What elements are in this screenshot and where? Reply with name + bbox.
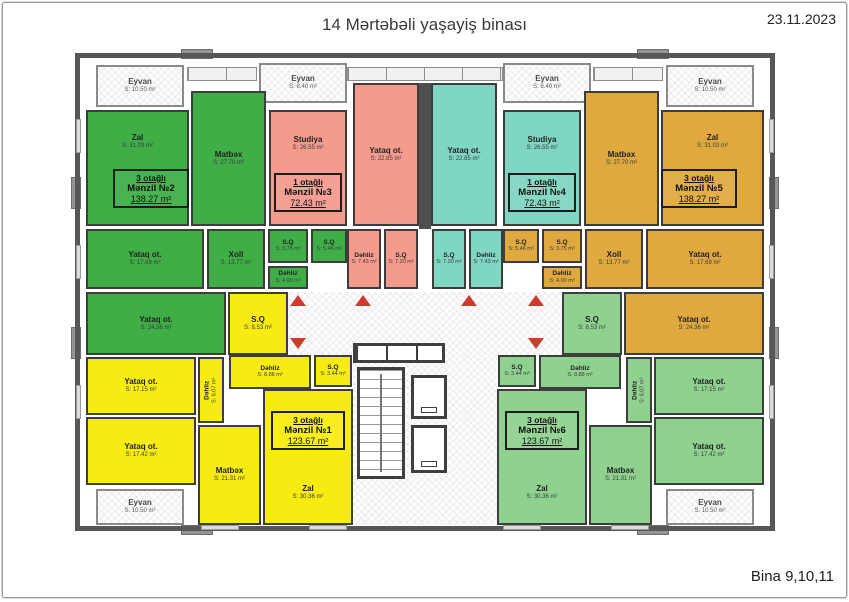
room-area-label: S: 27.70 m² bbox=[606, 160, 637, 168]
room-dehliz-5: DəhlizS: 4.00 m² bbox=[542, 266, 582, 289]
room-area-label: S: 4.00 m² bbox=[549, 278, 574, 285]
room-sq-4: S.QS: 7.20 m² bbox=[432, 229, 466, 289]
room-area-label: S: 10.50 m² bbox=[694, 508, 725, 516]
room-area-label: S: 31.03 m² bbox=[697, 143, 728, 151]
room-name-label: Eyvan bbox=[128, 498, 152, 508]
room-area-label: S: 7.20 m² bbox=[388, 259, 413, 266]
room-area-label: S: 6.07 m² bbox=[639, 377, 646, 402]
room-name-label: S.Q bbox=[515, 239, 526, 247]
room-area-label: S: 8.40 m² bbox=[533, 84, 561, 92]
apartment-label-line: 1 otağlı bbox=[279, 177, 337, 187]
room-name-label: Zal bbox=[132, 133, 144, 143]
interior-wall bbox=[419, 83, 431, 229]
room-name-label: Matbəx bbox=[608, 150, 636, 160]
page-title: 14 Mərtəbəli yaşayiş binası bbox=[3, 15, 846, 35]
room-area-label: S: 3.44 m² bbox=[504, 371, 529, 378]
room-name-label: S.Q bbox=[282, 239, 293, 247]
room-zal-5: ZalS: 31.03 m² bbox=[661, 110, 764, 226]
room-area-label: S: 26.55 m² bbox=[526, 145, 557, 153]
room-name-label: S.Q bbox=[511, 364, 522, 372]
room-zal-2: ZalS: 31.03 m² bbox=[86, 110, 189, 226]
room-name-label: Xoll bbox=[607, 250, 622, 260]
room-dehliz-3: DəhlizS: 7.43 m² bbox=[347, 229, 381, 289]
window-opening bbox=[611, 525, 649, 530]
room-dehliz-6a: DəhlizS: 8.88 m² bbox=[539, 355, 621, 389]
window-opening bbox=[769, 245, 774, 279]
room-name-label: Yataq ot. bbox=[139, 315, 172, 325]
room-sq-5b: S.QS: 5.46 m² bbox=[503, 229, 539, 263]
balcony-eyvan-6: EyvanS: 10.50 m² bbox=[666, 489, 754, 525]
apartment-label-line: Mənzil №3 bbox=[279, 187, 337, 198]
room-name-label: Yataq ot. bbox=[369, 146, 402, 156]
staircase bbox=[357, 367, 405, 479]
apartment-label: 3 otağlıMənzil №1123.67 m² bbox=[271, 411, 345, 450]
window-opening bbox=[769, 385, 774, 419]
entrance-arrow-icon bbox=[290, 295, 306, 306]
room-name-label: Yataq ot. bbox=[692, 442, 725, 452]
apartment-label: 1 otağlıMənzil №472.43 m² bbox=[508, 173, 576, 212]
apartment-label-line: 72.43 m² bbox=[279, 198, 337, 208]
room-matbex-2: MatbəxS: 27.70 m² bbox=[191, 91, 266, 226]
room-area-label: S: 10.50 m² bbox=[124, 508, 155, 516]
room-name-label: Yataq ot. bbox=[128, 250, 161, 260]
room-area-label: S: 22.85 m² bbox=[448, 156, 479, 164]
room-sq-3: S.QS: 7.20 m² bbox=[384, 229, 418, 289]
apartment-label-line: 72.43 m² bbox=[513, 198, 571, 208]
room-area-label: S: 31.03 m² bbox=[122, 143, 153, 151]
room-area-label: S: 3.75 m² bbox=[549, 246, 574, 253]
room-xoll-2: XollS: 13.77 m² bbox=[207, 229, 265, 289]
room-name-label: Dəhliz bbox=[570, 365, 589, 373]
room-yataq-4: Yataq ot.S: 22.85 m² bbox=[431, 83, 497, 226]
balcony-eyvan-2: EyvanS: 10.50 m² bbox=[96, 65, 184, 107]
room-name-label: Yataq ot. bbox=[677, 315, 710, 325]
room-name-label: Eyvan bbox=[698, 498, 722, 508]
window-opening bbox=[76, 245, 81, 279]
room-name-label: S.Q bbox=[327, 364, 338, 372]
room-area-label: S: 8.88 m² bbox=[567, 372, 592, 379]
room-dehliz-1a: DəhlizS: 8.88 m² bbox=[229, 355, 311, 389]
apartment-label: 3 otağlıMənzil №6123.67 m² bbox=[505, 411, 579, 450]
room-matbex-6: MatbəxS: 21.31 m² bbox=[589, 425, 652, 525]
room-area-label: S: 7.43 m² bbox=[351, 259, 376, 266]
room-name-label: S.Q bbox=[585, 315, 599, 325]
room-area-label: S: 10.50 m² bbox=[694, 87, 725, 95]
window-opening bbox=[76, 119, 81, 153]
room-sq-2b: S.QS: 5.46 m² bbox=[311, 229, 347, 263]
apartment-label-line: Mənzil №2 bbox=[118, 183, 184, 194]
room-area-label: S: 5.46 m² bbox=[508, 246, 533, 253]
room-sq-2a: S.QS: 3.75 m² bbox=[268, 229, 308, 263]
room-name-label: Matbəx bbox=[215, 150, 243, 160]
balcony-eyvan-4: EyvanS: 8.40 m² bbox=[503, 63, 591, 103]
room-area-label: S: 13.77 m² bbox=[598, 260, 629, 268]
apartment-label-line: 3 otağlı bbox=[510, 415, 574, 425]
room-name-label: S.Q bbox=[395, 252, 406, 260]
entrance-arrow-icon bbox=[355, 295, 371, 306]
room-name-label: Dəhliz bbox=[354, 252, 373, 260]
room-name-label: Dəhliz bbox=[476, 252, 495, 260]
apartment-label: 1 otağlıMənzil №372.43 m² bbox=[274, 173, 342, 212]
window-opening bbox=[769, 119, 774, 153]
room-name-label: Studiya bbox=[528, 135, 557, 145]
room-matbex-1: MatbəxS: 21.31 m² bbox=[198, 425, 261, 525]
room-sq-6a: S.QS: 8.53 m² bbox=[562, 292, 622, 355]
facade-window-band bbox=[593, 67, 663, 81]
room-area-label: S: 3.44 m² bbox=[320, 371, 345, 378]
window-opening bbox=[201, 525, 239, 530]
room-area-label: S: 17.42 m² bbox=[125, 452, 156, 460]
room-name-label: Dəhliz bbox=[260, 365, 279, 373]
room-area-label: S: 3.75 m² bbox=[275, 246, 300, 253]
room-name-label: S.Q bbox=[443, 252, 454, 260]
room-name-label: Matbəx bbox=[607, 466, 635, 476]
apartment-label: 3 otağlıMənzil №5138.27 m² bbox=[661, 169, 737, 208]
room-sq-6b: S.QS: 3.44 m² bbox=[498, 355, 536, 387]
entrance-arrow-icon bbox=[461, 295, 477, 306]
room-name-label: Yataq ot. bbox=[692, 377, 725, 387]
room-yataq-2a: Yataq ot.S: 17.69 m² bbox=[86, 229, 204, 289]
room-area-label: S: 13.77 m² bbox=[220, 260, 251, 268]
room-area-label: S: 8.53 m² bbox=[578, 325, 606, 333]
room-area-label: S: 22.85 m² bbox=[370, 156, 401, 164]
room-area-label: S: 8.40 m² bbox=[289, 84, 317, 92]
room-area-label: S: 8.53 m² bbox=[244, 325, 272, 333]
apartment-label-line: Mənzil №1 bbox=[276, 425, 340, 436]
room-name-label: Studiya bbox=[294, 135, 323, 145]
apartment-label-line: Mənzil №5 bbox=[666, 183, 732, 194]
apartment-label-line: 123.67 m² bbox=[510, 436, 574, 446]
date-label: 23.11.2023 bbox=[767, 11, 836, 27]
room-sq-5a: S.QS: 3.75 m² bbox=[542, 229, 582, 263]
core-vestibule bbox=[353, 343, 445, 363]
apartment-label-line: 3 otağlı bbox=[666, 173, 732, 183]
room-area-label: S: 7.20 m² bbox=[436, 259, 461, 266]
window-opening bbox=[503, 525, 541, 530]
building-number-label: Bina 9,10,11 bbox=[751, 568, 834, 585]
room-yataq-5a: Yataq ot.S: 17.69 m² bbox=[646, 229, 764, 289]
room-area-label: S: 17.69 m² bbox=[129, 260, 160, 268]
room-area-label: S: 30.36 m² bbox=[292, 494, 323, 502]
room-name-label: S.Q bbox=[251, 315, 265, 325]
room-area-label: S: 5.46 m² bbox=[316, 246, 341, 253]
apartment-label-line: 138.27 m² bbox=[118, 194, 184, 204]
elevator-shaft bbox=[411, 375, 447, 419]
room-name-label: Xoll bbox=[229, 250, 244, 260]
room-area-label: S: 24.36 m² bbox=[140, 325, 171, 333]
apartment-label-line: 1 otağlı bbox=[513, 177, 571, 187]
room-xoll-5: XollS: 13.77 m² bbox=[585, 229, 643, 289]
room-name-label: Eyvan bbox=[128, 77, 152, 87]
room-yataq-1a: Yataq ot.S: 17.15 m² bbox=[86, 357, 196, 415]
room-zal-1: ZalS: 30.36 m² bbox=[263, 389, 353, 525]
room-yataq-3: Yataq ot.S: 22.85 m² bbox=[353, 83, 419, 226]
room-area-label: S: 27.70 m² bbox=[213, 160, 244, 168]
apartment-label-line: 138.27 m² bbox=[666, 194, 732, 204]
room-area-label: S: 7.43 m² bbox=[473, 259, 498, 266]
floor-plan: EyvanS: 10.50 m²EyvanS: 8.40 m²EyvanS: 8… bbox=[81, 59, 769, 525]
room-area-label: S: 17.69 m² bbox=[689, 260, 720, 268]
balcony-eyvan-5: EyvanS: 10.50 m² bbox=[666, 65, 754, 107]
room-name-label: Zal bbox=[536, 484, 548, 494]
window-opening bbox=[76, 385, 81, 419]
apartment-label-line: Mənzil №6 bbox=[510, 425, 574, 436]
room-name-label: Dəhliz bbox=[278, 270, 297, 278]
room-dehliz-2: DəhlizS: 4.00 m² bbox=[268, 266, 308, 289]
room-yataq-5b: Yataq ot.S: 24.36 m² bbox=[624, 292, 764, 355]
room-name-label: Eyvan bbox=[291, 74, 315, 84]
room-yataq-6a: Yataq ot.S: 17.15 m² bbox=[654, 357, 764, 415]
room-area-label: S: 30.36 m² bbox=[526, 494, 557, 502]
room-matbex-5: MatbəxS: 27.70 m² bbox=[584, 91, 659, 226]
room-area-label: S: 26.55 m² bbox=[292, 145, 323, 153]
room-area-label: S: 21.31 m² bbox=[214, 476, 245, 484]
room-name-label: Yataq ot. bbox=[688, 250, 721, 260]
room-name-label: S.Q bbox=[556, 239, 567, 247]
elevator-shaft bbox=[411, 425, 447, 473]
apartment-label-line: 3 otağlı bbox=[276, 415, 340, 425]
room-yataq-6b: Yataq ot.S: 17.42 m² bbox=[654, 417, 764, 485]
window-opening bbox=[309, 525, 347, 530]
entrance-arrow-icon bbox=[290, 338, 306, 349]
room-name-label: Yataq ot. bbox=[124, 442, 157, 452]
facade-window-band bbox=[347, 67, 503, 81]
room-area-label: S: 4.00 m² bbox=[275, 278, 300, 285]
room-area-label: S: 17.42 m² bbox=[693, 452, 724, 460]
room-dehliz-4: DəhlizS: 7.43 m² bbox=[469, 229, 503, 289]
room-name-label: Matbəx bbox=[216, 466, 244, 476]
room-name-label: Yataq ot. bbox=[124, 377, 157, 387]
room-area-label: S: 17.15 m² bbox=[693, 387, 724, 395]
room-sq-1a: S.QS: 8.53 m² bbox=[228, 292, 288, 355]
room-area-label: S: 6.07 m² bbox=[211, 377, 218, 402]
apartment-label-line: 3 otağlı bbox=[118, 173, 184, 183]
room-yataq-1b: Yataq ot.S: 17.42 m² bbox=[86, 417, 196, 485]
room-name-label: Zal bbox=[707, 133, 719, 143]
apartment-label-line: 123.67 m² bbox=[276, 436, 340, 446]
apartment-label: 3 otağlıMənzil №2138.27 m² bbox=[113, 169, 189, 208]
room-dehliz-1b: DəhlizS: 6.07 m² bbox=[198, 357, 224, 423]
facade-window-band bbox=[187, 67, 257, 81]
apartment-label-line: Mənzil №4 bbox=[513, 187, 571, 198]
entrance-arrow-icon bbox=[528, 338, 544, 349]
balcony-eyvan-1: EyvanS: 10.50 m² bbox=[96, 489, 184, 525]
room-name-label: Dəhliz bbox=[552, 270, 571, 278]
room-name-label: Zal bbox=[302, 484, 314, 494]
room-area-label: S: 10.50 m² bbox=[124, 87, 155, 95]
room-area-label: S: 21.31 m² bbox=[605, 476, 636, 484]
page-frame: 14 Mərtəbəli yaşayiş binası 23.11.2023 E… bbox=[2, 2, 847, 598]
balcony-eyvan-3: EyvanS: 8.40 m² bbox=[259, 63, 347, 103]
room-area-label: S: 8.88 m² bbox=[257, 372, 282, 379]
room-name-label: S.Q bbox=[323, 239, 334, 247]
room-name-label: Eyvan bbox=[698, 77, 722, 87]
room-name-label: Yataq ot. bbox=[447, 146, 480, 156]
room-dehliz-6b: DəhlizS: 6.07 m² bbox=[626, 357, 652, 423]
room-area-label: S: 17.15 m² bbox=[125, 387, 156, 395]
room-area-label: S: 24.36 m² bbox=[678, 325, 709, 333]
room-zal-6: ZalS: 30.36 m² bbox=[497, 389, 587, 525]
room-yataq-2b: Yataq ot.S: 24.36 m² bbox=[86, 292, 226, 355]
entrance-arrow-icon bbox=[528, 295, 544, 306]
room-sq-1b: S.QS: 3.44 m² bbox=[314, 355, 352, 387]
room-name-label: Eyvan bbox=[535, 74, 559, 84]
